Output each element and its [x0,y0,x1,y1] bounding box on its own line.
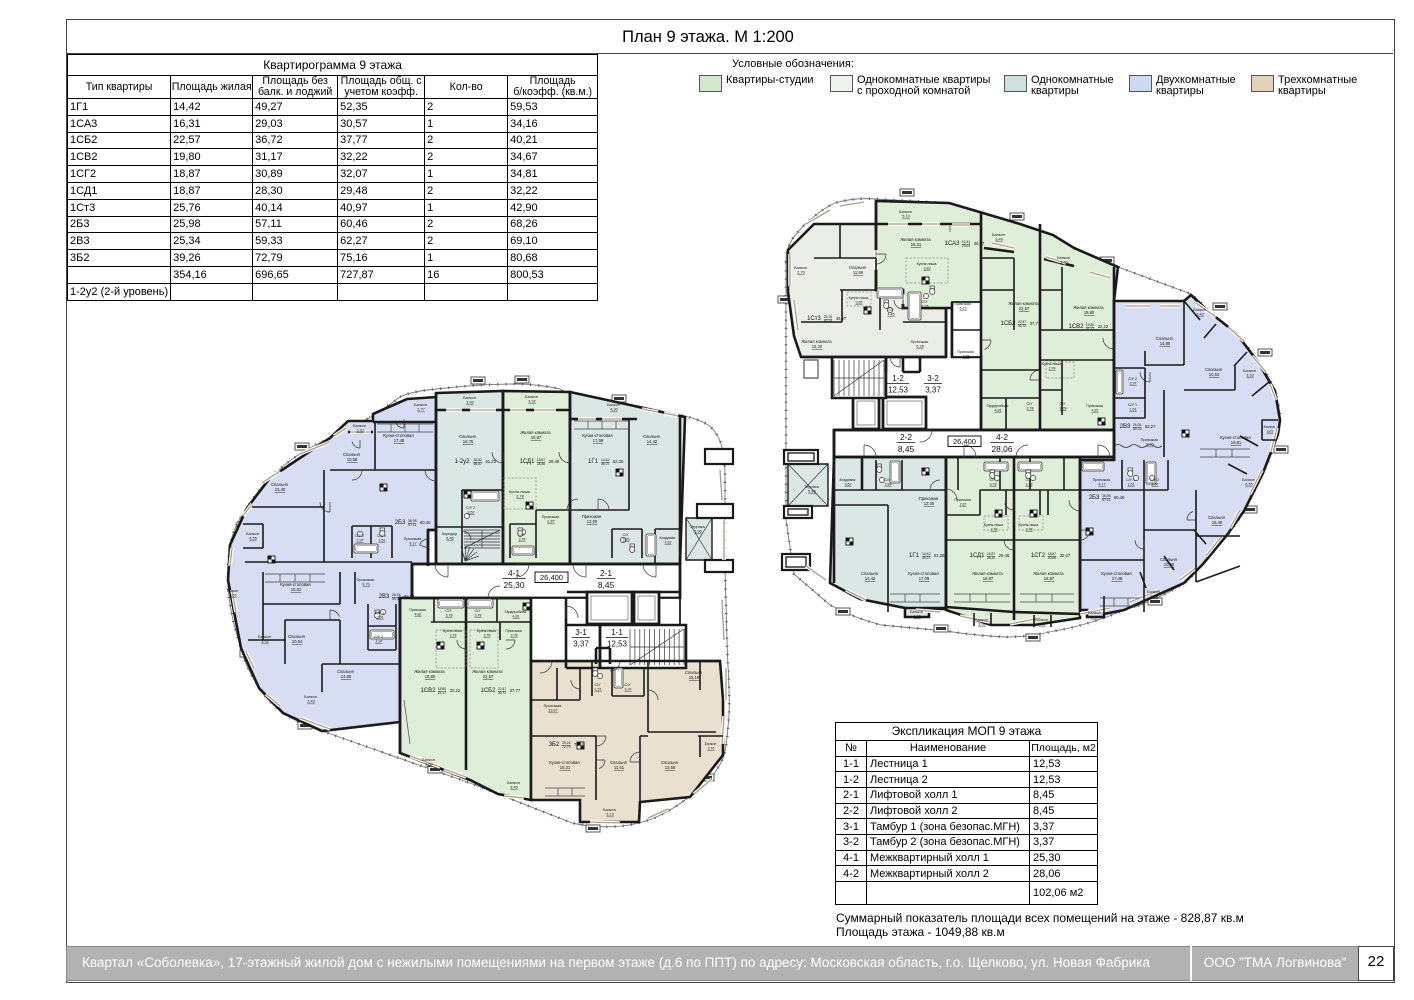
svg-text:1СА3: 1СА3 [945,241,961,247]
svg-text:32,07: 32,07 [1060,553,1071,558]
svg-text:С/У 2 2,97: С/У 2 2,97 [374,635,384,644]
svg-text:40,97: 40,97 [836,316,847,321]
svg-text:3,37: 3,37 [925,385,941,394]
svg-text:С/У 3,89: С/У 3,89 [885,478,892,487]
svg-text:2В3: 2В3 [379,594,390,600]
svg-text:1СГ2: 1СГ2 [1031,553,1046,559]
svg-text:62,27: 62,27 [404,594,415,599]
svg-text:26,400: 26,400 [953,437,976,446]
svg-text:С/У 1 1,51: С/У 1 1,51 [1128,403,1138,412]
svg-text:1СБ2: 1СБ2 [1001,321,1017,327]
svg-text:2Б3: 2Б3 [1089,495,1100,501]
svg-text:1СД1: 1СД1 [970,553,986,559]
svg-text:3,37: 3,37 [573,639,589,648]
svg-text:1-1: 1-1 [611,628,623,637]
svg-text:28,30: 28,30 [537,462,546,466]
svg-text:1-2: 1-2 [892,374,904,383]
svg-text:1СБ2: 1СБ2 [481,688,497,694]
svg-text:С/У 2 2,97: С/У 2 2,97 [1128,377,1138,386]
svg-text:62,27: 62,27 [1145,424,1156,429]
svg-text:С/У 1 1,51: С/У 1 1,51 [375,611,385,620]
svg-text:1Ст3: 1Ст3 [807,316,821,322]
svg-text:1Г1: 1Г1 [909,553,920,559]
svg-text:37,77: 37,77 [1030,321,1041,326]
svg-text:26,400: 26,400 [540,573,563,582]
svg-text:31,17: 31,17 [438,691,447,695]
svg-text:С/У 3,76: С/У 3,76 [922,300,929,309]
svg-text:12,53: 12,53 [607,639,628,648]
svg-text:2Б3: 2Б3 [395,520,406,526]
svg-text:С/У 2 2,97: С/У 2 2,97 [1150,478,1160,487]
svg-text:8,45: 8,45 [598,580,615,590]
svg-text:49,27: 49,27 [922,556,931,560]
svg-text:1-2у2: 1-2у2 [454,459,470,465]
svg-text:С/У 4,45: С/У 4,45 [888,308,895,317]
svg-text:1Г1: 1Г1 [588,459,599,465]
svg-text:32,22: 32,22 [1098,324,1109,329]
svg-text:С/У 3,78: С/У 3,78 [1026,478,1033,487]
svg-text:57,11: 57,11 [408,523,416,527]
svg-text:С/У 2 3,52: С/У 2 3,52 [466,506,476,515]
svg-text:30,89: 30,89 [1048,556,1057,560]
svg-text:8,45: 8,45 [898,444,915,454]
svg-text:2-2: 2-2 [900,432,912,442]
svg-text:72,79: 72,79 [562,745,571,749]
svg-text:57,11: 57,11 [1102,498,1110,502]
svg-text:С/У 3,78: С/У 3,78 [1027,402,1034,411]
svg-text:31,17: 31,17 [1086,327,1095,331]
svg-text:29,03: 29,03 [962,244,971,248]
svg-text:30,57: 30,57 [974,241,985,246]
svg-text:36,72: 36,72 [498,691,507,695]
svg-text:3-1: 3-1 [575,628,587,637]
svg-text:С/У 3,78: С/У 3,78 [990,478,997,487]
svg-text:59,33: 59,33 [392,597,401,601]
svg-text:40,14: 40,14 [824,319,833,323]
svg-text:29,48: 29,48 [549,459,560,464]
svg-text:55,87: 55,87 [473,462,482,466]
svg-text:С/У 3,78: С/У 3,78 [519,533,526,542]
svg-text:76,16: 76,16 [574,742,585,747]
svg-text:1СД1: 1СД1 [520,459,536,465]
svg-text:3Б2: 3Б2 [549,742,560,748]
svg-text:С/У 3,89: С/У 3,89 [623,533,630,542]
svg-text:60,46: 60,46 [1114,495,1125,500]
svg-text:36,72: 36,72 [1018,324,1027,328]
svg-text:1СВ2: 1СВ2 [420,688,436,694]
svg-text:25,30: 25,30 [504,580,525,590]
svg-text:С/У 2 2,97: С/У 2 2,97 [355,534,365,543]
svg-text:2-1: 2-1 [600,568,612,578]
svg-text:С/У 3,74: С/У 3,74 [625,683,632,692]
svg-text:3-2: 3-2 [927,374,939,383]
svg-text:С/У 1,51: С/У 1,51 [595,683,602,692]
svg-text:28,06: 28,06 [992,444,1013,454]
svg-text:2В3: 2В3 [1120,424,1131,430]
svg-text:С/У 1 1,51: С/У 1 1,51 [1126,478,1136,487]
svg-text:29,48: 29,48 [999,553,1010,558]
svg-text:С/У 3,78: С/У 3,78 [475,609,482,618]
svg-text:4-2: 4-2 [996,432,1008,442]
svg-text:28,30: 28,30 [987,556,996,560]
svg-text:52,36: 52,36 [613,459,624,464]
svg-text:1СВ2: 1СВ2 [1068,324,1084,330]
svg-text:С/У 1 1,51: С/У 1 1,51 [377,534,387,543]
svg-text:60,46: 60,46 [420,520,431,525]
svg-text:12,53: 12,53 [888,385,909,394]
svg-text:49,27: 49,27 [601,462,610,466]
svg-text:37,77: 37,77 [510,688,521,693]
svg-text:52,36: 52,36 [934,553,945,558]
svg-text:32,22: 32,22 [450,688,461,693]
svg-text:С/У 3,78: С/У 3,78 [1060,402,1067,411]
svg-text:С/У 3,78: С/У 3,78 [446,609,453,618]
svg-text:59,33: 59,33 [1133,427,1142,431]
